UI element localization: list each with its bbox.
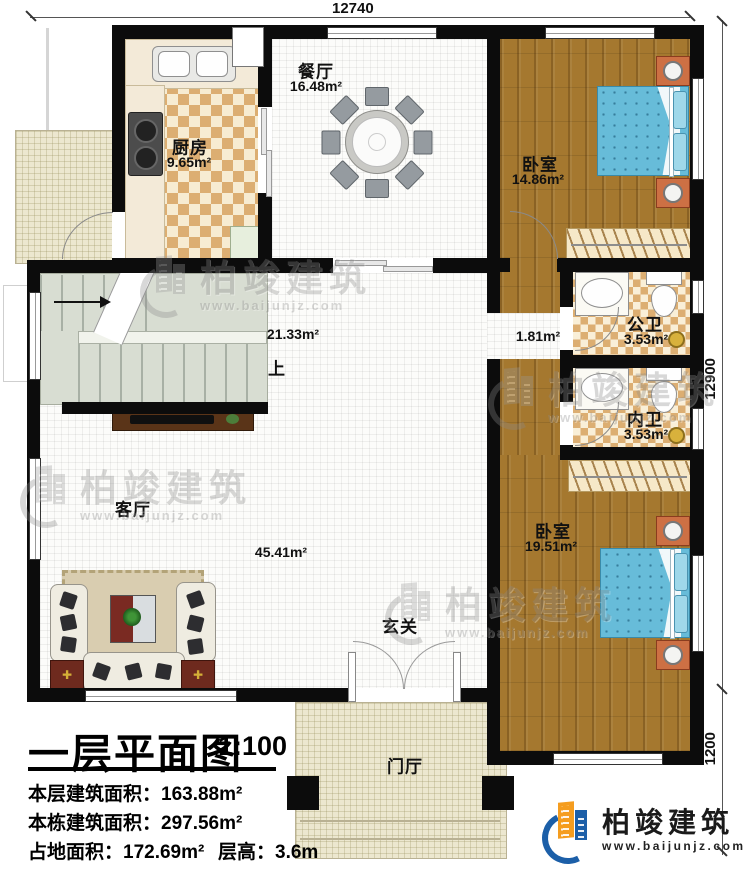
bedroom2-nightstand bbox=[656, 516, 690, 546]
room-area-corridor: 1.81m² bbox=[516, 328, 560, 344]
wall bbox=[487, 258, 500, 313]
kitchen-cabinet bbox=[230, 226, 259, 259]
side-table: ✚ bbox=[181, 660, 215, 690]
room-label-entry: 玄关 bbox=[382, 613, 418, 638]
wall bbox=[560, 447, 690, 460]
room-label-porch: 门厅 bbox=[387, 753, 423, 778]
bay-window-outline bbox=[3, 285, 30, 382]
wall bbox=[258, 193, 272, 258]
building-area-line: 本栋建筑面积：297.56m² bbox=[28, 808, 242, 835]
sofa-right bbox=[176, 582, 216, 662]
stair-treads-lower bbox=[78, 344, 265, 402]
wall bbox=[487, 359, 500, 455]
stove-burner bbox=[134, 119, 158, 143]
bed-pillow bbox=[674, 595, 688, 633]
window bbox=[29, 292, 41, 380]
land-area-line: 占地面积：172.69m² bbox=[28, 837, 204, 864]
porch-floor bbox=[295, 702, 507, 859]
sofa-pillow bbox=[60, 636, 77, 653]
bed-pillow bbox=[673, 91, 687, 129]
room-area-hall: 21.33m² bbox=[267, 326, 319, 342]
dimension-line-top bbox=[30, 17, 690, 18]
dining-chair bbox=[365, 179, 389, 198]
dimension-tick bbox=[25, 10, 36, 21]
room-area-living: 45.41m² bbox=[255, 544, 307, 560]
wall bbox=[557, 258, 690, 272]
eave-line bbox=[46, 28, 49, 132]
wall bbox=[560, 350, 573, 402]
room-area-bedroom2: 19.51m² bbox=[525, 538, 577, 554]
sofa-pillow bbox=[186, 614, 204, 632]
bedroom2-nightstand bbox=[656, 640, 690, 670]
plan-title: 一层平面图 bbox=[28, 720, 243, 780]
sofa-pillow bbox=[59, 591, 78, 610]
sofa-pillow bbox=[186, 590, 205, 609]
entry-door-opening bbox=[353, 688, 455, 702]
dimension-top: 12740 bbox=[332, 0, 374, 17]
dimension-tick bbox=[684, 10, 695, 21]
tv bbox=[130, 415, 214, 424]
bed-pillow bbox=[673, 133, 687, 171]
floor-drain bbox=[668, 427, 685, 444]
room-area-inner-bath: 3.53m² bbox=[624, 426, 668, 442]
wall bbox=[27, 260, 125, 273]
brand-url: www.baijunjz.com bbox=[602, 839, 746, 853]
public-bath-sink bbox=[581, 278, 623, 308]
floor-plan: 12740 12900 1200 bbox=[0, 0, 750, 870]
brand-logo: 柏竣建筑 www.baijunjz.com bbox=[542, 800, 746, 854]
wall bbox=[487, 455, 500, 765]
sofa-pillow bbox=[187, 638, 204, 655]
brand-name: 柏竣建筑 bbox=[602, 801, 746, 841]
wall bbox=[560, 258, 573, 307]
inner-bath-sink bbox=[581, 373, 623, 402]
room-area-bedroom1: 14.86m² bbox=[512, 171, 564, 187]
stair-direction-arrow bbox=[100, 296, 111, 308]
stairs-up-label: 上 bbox=[268, 355, 286, 380]
window bbox=[29, 458, 41, 560]
window bbox=[553, 753, 663, 765]
bedroom2-wardrobe bbox=[568, 460, 692, 492]
window bbox=[545, 27, 655, 39]
cabinet-plant bbox=[226, 414, 239, 424]
title-underline bbox=[28, 767, 276, 771]
floor-drain bbox=[668, 331, 685, 348]
bedroom1-nightstand bbox=[656, 178, 690, 208]
entry-door-jamb bbox=[453, 652, 461, 702]
room-area-dining: 16.48m² bbox=[290, 78, 342, 94]
wall bbox=[112, 25, 125, 215]
dining-chair bbox=[414, 131, 433, 155]
dining-chair bbox=[322, 131, 341, 155]
kitchen-sink-basin bbox=[158, 51, 190, 77]
porch-column bbox=[287, 776, 319, 810]
bed-pillow bbox=[674, 553, 688, 591]
sofa-pillow bbox=[92, 662, 111, 681]
sliding-door-panel bbox=[335, 260, 387, 266]
wall bbox=[573, 355, 690, 368]
porch-step-line bbox=[300, 838, 500, 840]
dining-chair bbox=[365, 87, 389, 106]
floor-area-line: 本层建筑面积：163.88m² bbox=[28, 779, 242, 806]
sliding-door-panel bbox=[266, 150, 272, 197]
plan-scale: 1:100 bbox=[218, 731, 287, 762]
window bbox=[85, 690, 237, 702]
wall bbox=[62, 402, 268, 414]
brand-logo-icon bbox=[542, 800, 594, 854]
side-table: ✚ bbox=[50, 660, 84, 690]
window bbox=[327, 27, 437, 39]
bedroom1-bed bbox=[597, 86, 689, 176]
sliding-door-panel bbox=[261, 108, 267, 155]
room-area-public-bath: 3.53m² bbox=[624, 331, 668, 347]
sofa-left bbox=[50, 584, 88, 662]
bedroom2-bed bbox=[600, 548, 690, 638]
bedroom1-nightstand bbox=[656, 56, 690, 86]
stove-burner bbox=[134, 146, 158, 170]
dining-table-group bbox=[345, 110, 407, 172]
window bbox=[692, 280, 704, 314]
window bbox=[692, 78, 704, 180]
porch-column bbox=[482, 776, 514, 810]
public-bath-toilet-tank bbox=[646, 271, 682, 285]
wall bbox=[487, 25, 500, 258]
coffee-table-plant bbox=[123, 608, 141, 626]
window bbox=[692, 408, 704, 450]
sofa-pillow bbox=[124, 662, 142, 680]
dimension-line-right bbox=[722, 20, 723, 693]
room-label-living: 客厅 bbox=[115, 496, 151, 521]
sliding-door-panel bbox=[383, 266, 433, 272]
fridge-niche bbox=[232, 27, 264, 67]
door-opening bbox=[112, 212, 125, 258]
entry-door-jamb bbox=[348, 652, 356, 702]
stair-direction-line bbox=[54, 301, 102, 303]
dimension-right-lower: 1200 bbox=[702, 732, 719, 765]
room-area-kitchen: 9.65m² bbox=[167, 154, 211, 170]
sofa-pillow bbox=[155, 663, 172, 680]
dining-table-center bbox=[368, 133, 386, 151]
porch-step-line bbox=[300, 820, 500, 822]
sofa-pillow bbox=[60, 614, 78, 632]
sofa-main bbox=[83, 652, 185, 692]
bedroom1-wardrobe bbox=[566, 228, 692, 260]
inner-bath-toilet-tank bbox=[646, 367, 682, 381]
window bbox=[692, 555, 704, 652]
floor-height-line: 层高：3.6m bbox=[218, 837, 318, 864]
kitchen-sink-basin bbox=[196, 51, 228, 77]
dimension-right: 12900 bbox=[702, 358, 719, 400]
